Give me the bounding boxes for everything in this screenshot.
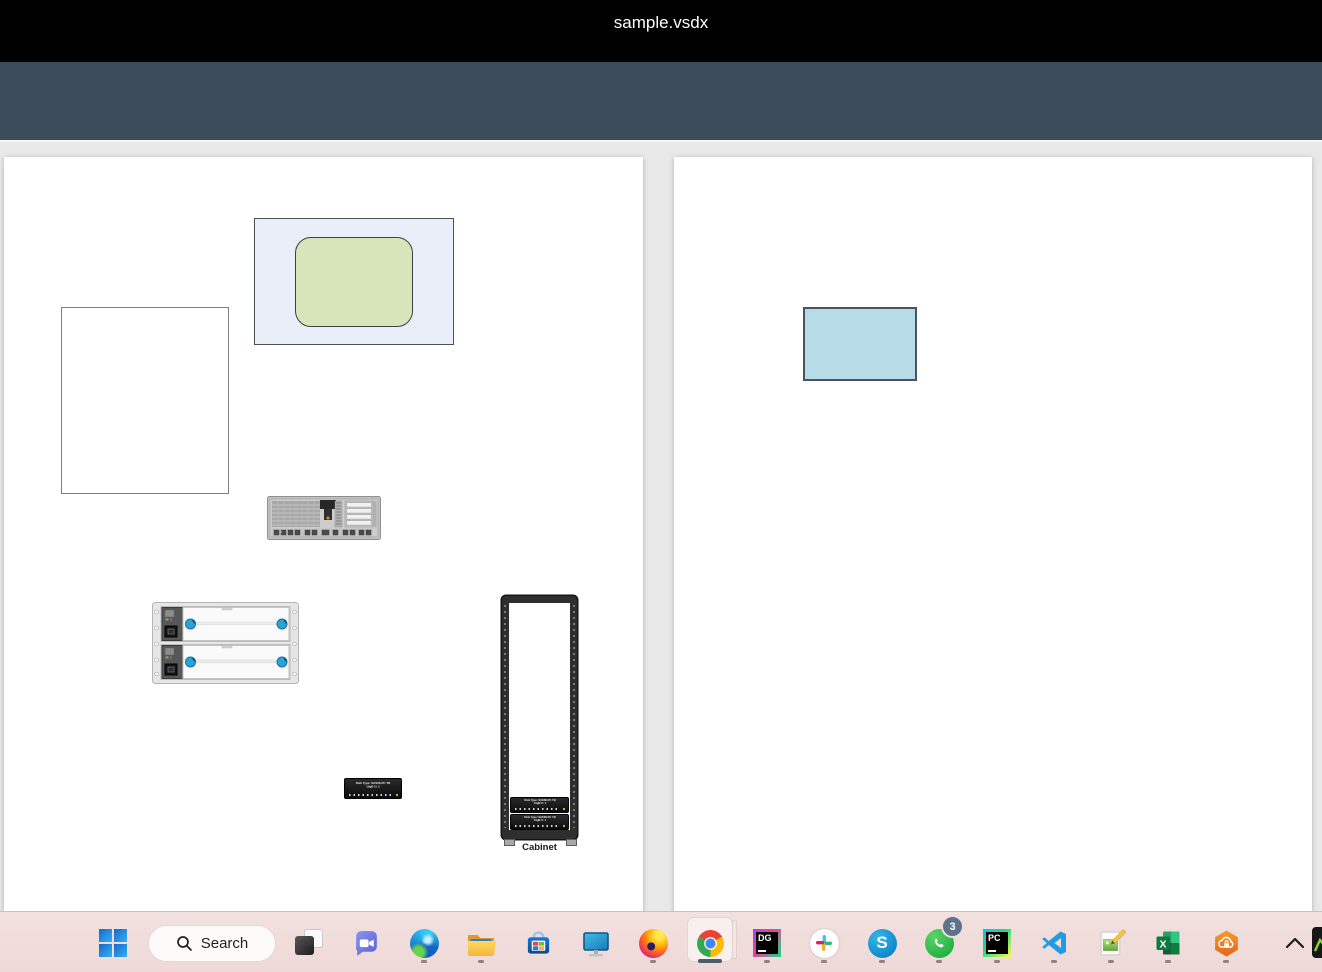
whatsapp-running-indicator [936, 960, 942, 963]
document-page-1: Disk Type: SAS08-PC TB 10gB U: 1 Disk Ty… [4, 157, 643, 913]
cabinet-label: Cabinet [482, 842, 597, 853]
document-page-2 [674, 157, 1312, 913]
taskbar-item-edge[interactable] [402, 922, 446, 964]
firefox-icon [639, 929, 668, 958]
activity-graph-icon [1312, 927, 1322, 958]
document-viewer[interactable]: Disk Type: SAS08-PC TB 10gB U: 1 Disk Ty… [0, 140, 1322, 911]
whatsapp-badge: 3 [941, 915, 964, 938]
chevron-up-icon [1283, 931, 1307, 955]
taskbar-item-datagrip[interactable]: DG [745, 922, 789, 964]
windows-logo-icon [99, 929, 128, 958]
cloud-security-running-indicator [1223, 960, 1229, 963]
vscode-icon [1040, 929, 1068, 957]
pycharm-running-indicator [994, 960, 1000, 963]
taskbar-item-firefox[interactable] [631, 922, 675, 964]
shape-rack-unit: Disk Type: SAS08-PC TB 10gB U: 1 [344, 778, 402, 799]
image-editor-running-indicator [1108, 960, 1114, 963]
image-editor-icon [1097, 929, 1126, 958]
viewer-toolbar: 1/3 [0, 62, 1322, 140]
datagrip-icon: DG [753, 929, 781, 957]
datagrip-running-indicator [764, 960, 770, 963]
rack-unit-text: Disk Type: SAS08-PC TB 10gB U: 1 [356, 782, 391, 789]
microsoft-store-icon [524, 929, 553, 958]
shape-cabinet: Disk Type: SAS08-PC TB 10gB U: 1 Disk Ty… [502, 596, 577, 839]
shape-server [267, 496, 381, 540]
start-button[interactable] [91, 922, 135, 964]
slack-running-indicator [821, 960, 827, 963]
shape-rounded-rectangle [295, 237, 413, 327]
window-title: sample.vsdx [0, 13, 1322, 33]
search-icon [176, 935, 193, 952]
excel-icon: X [1154, 929, 1182, 957]
chrome-active-indicator [698, 959, 722, 963]
taskbar-item-file-explorer[interactable] [459, 922, 503, 964]
taskbar-item-cloud-security[interactable] [1204, 922, 1248, 964]
cloud-security-icon [1212, 929, 1241, 958]
taskbar-item-excel[interactable]: X [1146, 922, 1190, 964]
rack-unit-ports [349, 794, 392, 797]
taskbar-item-microsoft-store[interactable] [516, 922, 560, 964]
taskbar-item-vscode[interactable] [1032, 922, 1076, 964]
skype-running-indicator [879, 960, 885, 963]
svg-text:X: X [1160, 938, 1167, 950]
search-label: Search [201, 935, 249, 952]
taskbar-item-display[interactable] [574, 922, 618, 964]
chrome-icon [696, 929, 725, 958]
skype-icon: S [868, 929, 897, 958]
slack-icon [810, 929, 839, 958]
shape-blue-rectangle [803, 307, 917, 381]
firefox-running-indicator [650, 960, 656, 963]
edge-icon [410, 929, 439, 958]
taskbar-item-slack[interactable] [802, 922, 846, 964]
edge-running-indicator [421, 960, 427, 963]
taskbar-item-image-editor[interactable] [1089, 922, 1133, 964]
taskbar-item-chrome[interactable] [688, 922, 732, 964]
excel-running-indicator [1165, 960, 1171, 963]
window-titlebar: sample.vsdx [0, 0, 1322, 62]
search-input[interactable]: Search [148, 925, 276, 962]
screen: sample.vsdx 1/3 [0, 0, 1322, 972]
task-view-button[interactable] [287, 922, 331, 964]
file-explorer-icon [466, 930, 496, 957]
task-view-icon [294, 928, 324, 958]
tray-icon-partial[interactable] [1312, 927, 1322, 958]
display-icon [581, 929, 611, 958]
vscode-running-indicator [1051, 960, 1057, 963]
shape-rectangle [61, 307, 229, 494]
cabinet-rack-unit-2: Disk Type: SAS08-PC TB 10gB U: 1 [510, 814, 569, 830]
pycharm-icon: PC [983, 929, 1011, 957]
file-explorer-running-indicator [478, 960, 484, 963]
taskbar-item-whatsapp[interactable]: 3 [917, 922, 961, 964]
taskbar-item-skype[interactable]: S [860, 922, 904, 964]
taskbar-item-pycharm[interactable]: PC [975, 922, 1019, 964]
shape-disk-array [152, 602, 299, 684]
taskbar-item-teams[interactable] [344, 922, 388, 964]
rack-unit-led [396, 794, 399, 797]
teams-icon [352, 929, 381, 958]
tray-show-hidden-button[interactable] [1273, 922, 1317, 964]
cabinet-rack-unit-1: Disk Type: SAS08-PC TB 10gB U: 1 [510, 797, 569, 813]
